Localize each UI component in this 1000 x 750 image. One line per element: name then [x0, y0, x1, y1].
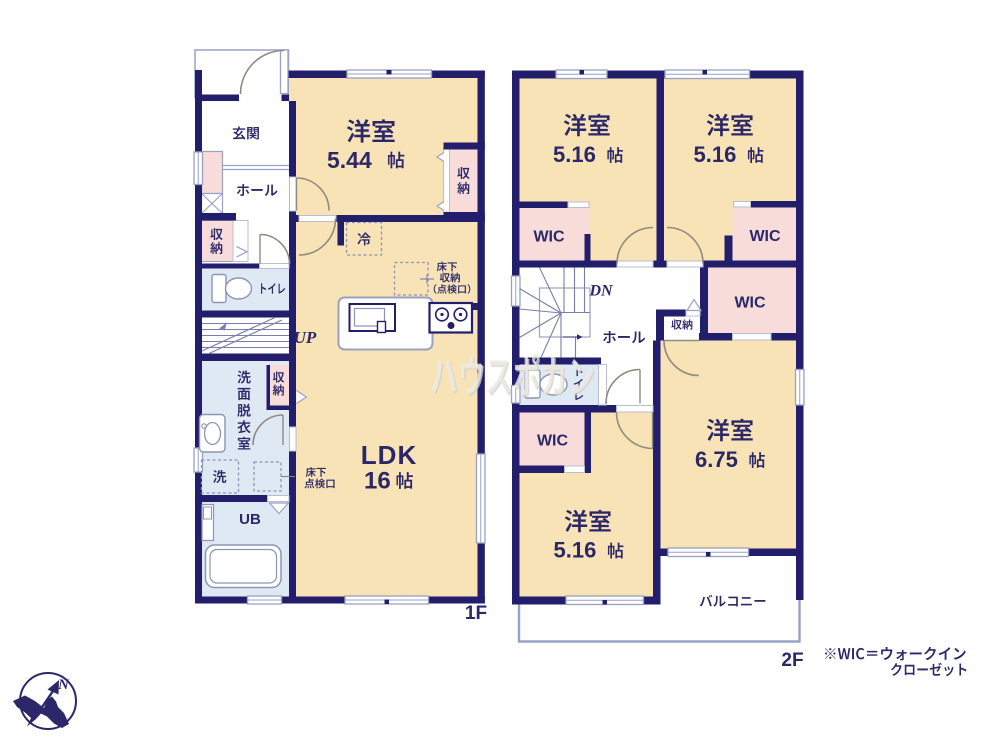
svg-text:DN: DN	[588, 283, 614, 300]
svg-text:WIC: WIC	[749, 228, 781, 245]
svg-text:UP: UP	[294, 328, 317, 347]
svg-text:WIC: WIC	[537, 433, 569, 450]
svg-text:5.16: 5.16	[553, 142, 596, 167]
svg-text:5.44: 5.44	[327, 147, 372, 173]
svg-text:LDK: LDK	[361, 440, 417, 470]
svg-text:WIC: WIC	[734, 295, 766, 312]
svg-text:5.16: 5.16	[554, 538, 597, 563]
svg-text:5.16: 5.16	[694, 142, 737, 167]
svg-text:N: N	[57, 677, 70, 693]
svg-text:1F: 1F	[465, 603, 487, 624]
svg-text:WIC: WIC	[533, 229, 565, 246]
svg-text:16: 16	[364, 468, 391, 495]
svg-text:UB: UB	[239, 511, 261, 528]
svg-text:6.75: 6.75	[695, 447, 738, 472]
svg-text:2F: 2F	[781, 650, 803, 671]
